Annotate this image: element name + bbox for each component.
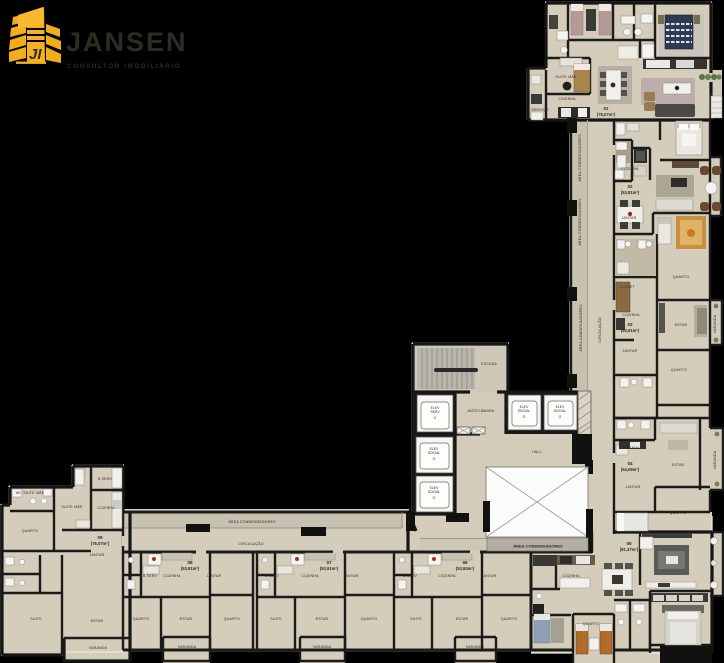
svg-text:SUITE: SUITE [270, 617, 282, 621]
svg-text:(53,91m²): (53,91m²) [320, 566, 339, 571]
svg-text:QUARTO: QUARTO [361, 617, 377, 621]
svg-text:SUITE MÃE: SUITE MÃE [61, 504, 83, 509]
svg-text:B.SERV: B.SERV [265, 574, 280, 578]
svg-text:VARANDA: VARANDA [178, 645, 197, 649]
svg-text:(53,91m²): (53,91m²) [621, 328, 640, 333]
svg-text:QUARTO: QUARTO [224, 617, 240, 621]
svg-text:VARANDA: VARANDA [313, 645, 332, 649]
svg-text:08: 08 [187, 560, 193, 565]
svg-text:O: O [433, 496, 436, 500]
svg-text:SOCIAL: SOCIAL [554, 409, 567, 413]
svg-text:06: 06 [462, 560, 468, 565]
svg-text:SUITE: SUITE [30, 617, 42, 621]
svg-text:QUARTO: QUARTO [671, 368, 687, 372]
svg-text:ESTAR: ESTAR [456, 617, 469, 621]
svg-text:COZINHA: COZINHA [438, 574, 456, 578]
svg-text:O: O [523, 415, 526, 419]
svg-text:COZINHA: COZINHA [621, 167, 639, 171]
svg-text:ESTAR: ESTAR [180, 617, 193, 621]
svg-text:COZINHA: COZINHA [622, 446, 640, 450]
svg-text:ESTAR: ESTAR [672, 463, 685, 467]
svg-text:B.SERV: B.SERV [98, 477, 113, 481]
svg-text:JI: JI [29, 46, 42, 63]
svg-text:02: 02 [627, 184, 633, 189]
svg-text:COZINHA: COZINHA [558, 97, 576, 101]
svg-text:ESTAR: ESTAR [675, 323, 688, 327]
svg-text:(76,07m²): (76,07m²) [91, 541, 110, 546]
svg-text:JANTAR: JANTAR [623, 349, 638, 353]
svg-text:05: 05 [626, 541, 632, 546]
svg-text:ÁREA CONDENSADORES: ÁREA CONDENSADORES [578, 134, 582, 182]
svg-text:JANTAR: JANTAR [207, 574, 222, 578]
svg-text:COZINHA: COZINHA [301, 574, 319, 578]
svg-text:COZINHA: COZINHA [163, 574, 181, 578]
svg-text:B.SERV: B.SERV [143, 574, 158, 578]
svg-text:JANTAR: JANTAR [344, 574, 359, 578]
svg-text:SUITE: SUITE [410, 617, 422, 621]
svg-text:QUARTO: QUARTO [501, 617, 517, 621]
svg-text:03: 03 [627, 322, 633, 327]
svg-text:CONSULTOR IMOBILIÁRIO: CONSULTOR IMOBILIÁRIO [67, 61, 181, 70]
svg-text:04: 04 [627, 461, 633, 466]
svg-text:CLOSET: CLOSET [619, 285, 635, 289]
svg-text:(78,07m²): (78,07m²) [597, 112, 616, 117]
svg-text:(81,37m²): (81,37m²) [620, 547, 639, 552]
svg-text:B.SERV: B.SERV [403, 574, 418, 578]
svg-text:VARANDA: VARANDA [713, 314, 717, 333]
svg-text:VARANDA: VARANDA [466, 645, 485, 649]
svg-text:07: 07 [326, 560, 332, 565]
svg-text:ESTAR: ESTAR [91, 619, 104, 623]
svg-text:WC SUITE MÃE: WC SUITE MÃE [16, 490, 45, 495]
svg-text:CIRCULAÇÃO: CIRCULAÇÃO [597, 317, 602, 343]
svg-text:ÁREA CONDENSADORES: ÁREA CONDENSADORES [513, 544, 563, 549]
svg-text:SOCIAL: SOCIAL [428, 490, 441, 494]
svg-text:QUARTO: QUARTO [673, 275, 689, 279]
svg-text:SERV: SERV [430, 410, 440, 414]
svg-text:ÁREA CONDENSADORES: ÁREA CONDENSADORES [228, 520, 276, 524]
svg-text:A.SERVIÇO: A.SERVIÇO [527, 108, 548, 112]
svg-text:QUARTO: QUARTO [22, 529, 38, 533]
svg-text:(53,81m²): (53,81m²) [621, 190, 640, 195]
svg-text:JANTAR: JANTAR [90, 553, 105, 557]
svg-text:JANTAR: JANTAR [622, 216, 637, 220]
svg-text:SOCIAL: SOCIAL [428, 451, 441, 455]
svg-text:SOCIAL: SOCIAL [518, 409, 531, 413]
svg-text:O: O [559, 415, 562, 419]
svg-text:VARANDA: VARANDA [713, 450, 717, 469]
svg-text:ESCADA: ESCADA [481, 362, 497, 366]
svg-text:09: 09 [97, 535, 103, 540]
svg-text:COZINHA: COZINHA [562, 574, 580, 578]
svg-text:QUARTO: QUARTO [583, 622, 599, 626]
svg-text:JANSEN: JANSEN [66, 27, 188, 57]
svg-text:ÁREA CONDENSADORES: ÁREA CONDENSADORES [578, 198, 582, 246]
svg-text:(54,08m²): (54,08m²) [621, 467, 640, 472]
svg-text:HALL: HALL [532, 450, 542, 454]
svg-text:VARANDA: VARANDA [89, 646, 108, 650]
svg-text:O: O [434, 416, 437, 420]
svg-text:COZINHA: COZINHA [97, 506, 115, 510]
svg-text:JANTAR: JANTAR [482, 574, 497, 578]
svg-text:01: 01 [603, 106, 609, 111]
svg-text:(53,91m²): (53,91m²) [181, 566, 200, 571]
svg-text:SUITE MÃE: SUITE MÃE [555, 74, 577, 79]
svg-text:QUARTO: QUARTO [133, 617, 149, 621]
svg-text:JANTAR: JANTAR [626, 485, 641, 489]
svg-text:ÁREA CONDENSADORES: ÁREA CONDENSADORES [579, 304, 583, 352]
svg-text:O: O [433, 457, 436, 461]
svg-text:ANTECÂMARA: ANTECÂMARA [468, 409, 495, 413]
svg-text:COZINHA: COZINHA [622, 313, 640, 317]
svg-text:CIRCULAÇÃO: CIRCULAÇÃO [238, 541, 264, 546]
svg-text:(53,84m²): (53,84m²) [456, 566, 475, 571]
svg-text:ESTAR: ESTAR [316, 617, 329, 621]
svg-text:QUARTO: QUARTO [670, 511, 686, 515]
